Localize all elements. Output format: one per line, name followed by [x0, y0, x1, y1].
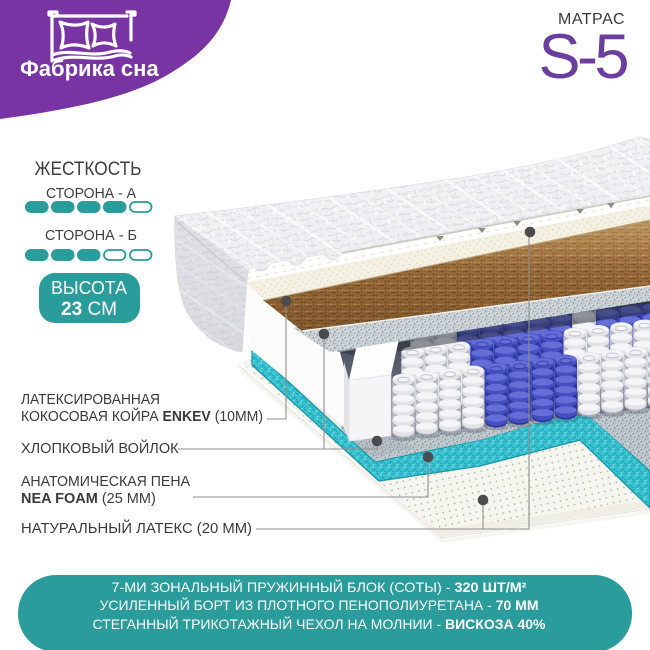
svg-text:АНАТОМИЧЕСКАЯ ПЕНА: АНАТОМИЧЕСКАЯ ПЕНА: [21, 474, 190, 490]
svg-text:Фабрика сна: Фабрика сна: [20, 56, 159, 81]
svg-text:S-5: S-5: [538, 22, 627, 92]
svg-text:СТОРОНА - А: СТОРОНА - А: [46, 185, 136, 202]
svg-text:ВЫСОТА: ВЫСОТА: [51, 278, 127, 298]
svg-text:УСИЛЕННЫЙ БОРТ ИЗ ПЛОТНОГО ПЕН: УСИЛЕННЫЙ БОРТ ИЗ ПЛОТНОГО ПЕНОПОЛИУРЕТА…: [100, 596, 539, 613]
svg-text:23 СМ: 23 СМ: [61, 299, 117, 320]
svg-text:ЛАТЕКСИРОВАННАЯ: ЛАТЕКСИРОВАННАЯ: [21, 392, 160, 408]
svg-text:СТОРОНА - Б: СТОРОНА - Б: [45, 227, 137, 244]
svg-text:СТЕГАННЫЙ ТРИКОТАЖНЫЙ ЧЕХОЛ НА: СТЕГАННЫЙ ТРИКОТАЖНЫЙ ЧЕХОЛ НА МОЛНИИ - …: [93, 615, 547, 632]
svg-text:ЖЕСТКОСТЬ: ЖЕСТКОСТЬ: [35, 159, 142, 180]
svg-text:ХЛОПКОВЫЙ ВОЙЛОК: ХЛОПКОВЫЙ ВОЙЛОК: [21, 439, 179, 457]
svg-text:НАТУРАЛЬНЫЙ ЛАТЕКС (20 ММ): НАТУРАЛЬНЫЙ ЛАТЕКС (20 ММ): [21, 519, 252, 537]
svg-text:КОКОСОВАЯ КОЙРА ENKEV (10ММ): КОКОСОВАЯ КОЙРА ENKEV (10ММ): [21, 407, 263, 425]
svg-text:7-МИ ЗОНАЛЬНЫЙ ПРУЖИННЫЙ БЛОК: 7-МИ ЗОНАЛЬНЫЙ ПРУЖИННЫЙ БЛОК (СОТЫ) - 3…: [112, 578, 527, 595]
svg-text:NEA FOAM (25 ММ): NEA FOAM (25 ММ): [21, 491, 156, 507]
